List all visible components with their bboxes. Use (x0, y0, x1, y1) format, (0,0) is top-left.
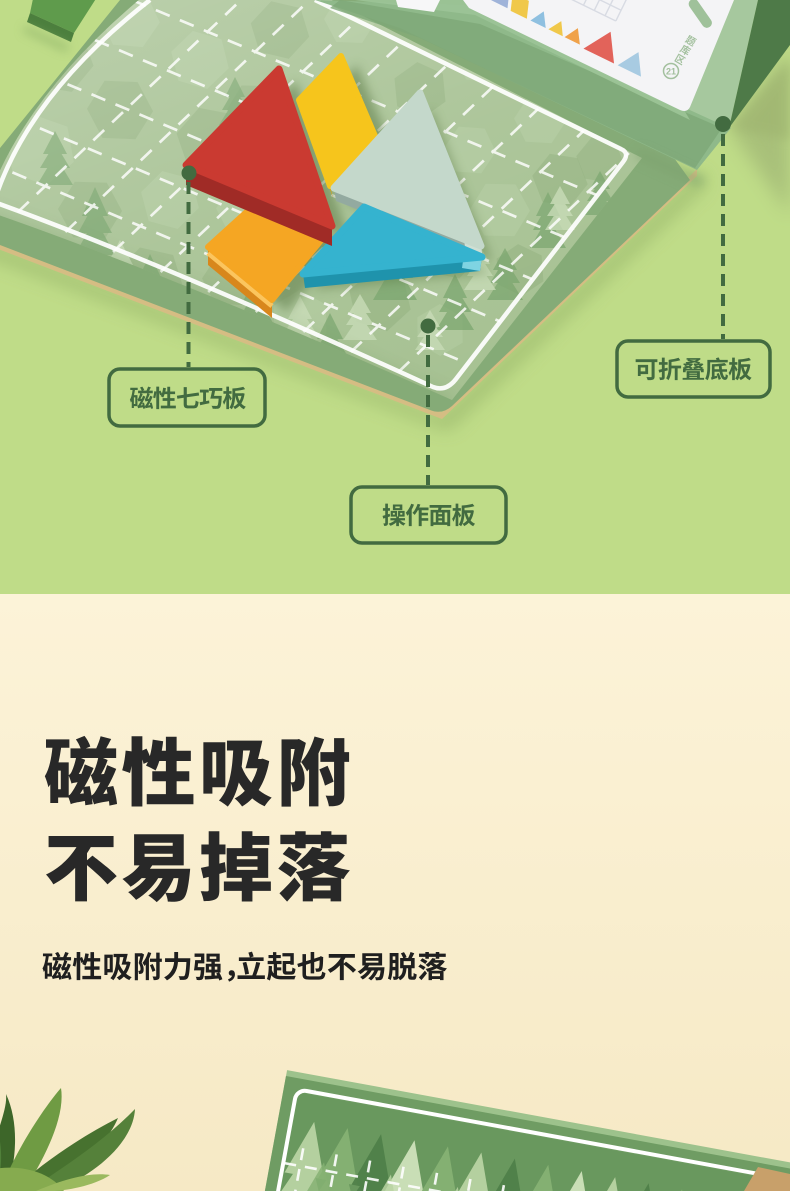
svg-text:21: 21 (666, 67, 676, 77)
